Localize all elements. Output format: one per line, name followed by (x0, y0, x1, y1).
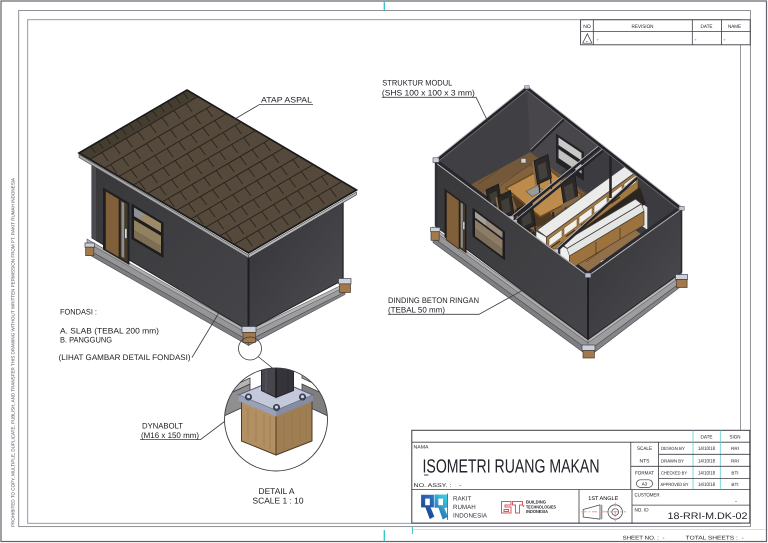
svg-text:ISOMETRI RUANG MAKAN: ISOMETRI RUANG MAKAN (423, 457, 600, 478)
svg-text:DATE: DATE (701, 24, 714, 30)
svg-text:(LIHAT GAMBAR DETAIL FONDASI): (LIHAT GAMBAR DETAIL FONDASI) (59, 353, 191, 362)
svg-text:NO. ASSY. : -: NO. ASSY. : - (414, 483, 462, 489)
svg-text:SCALE 1 : 10: SCALE 1 : 10 (253, 496, 304, 506)
svg-text:-: - (586, 39, 588, 45)
svg-text:-: - (597, 38, 599, 44)
svg-text:RRI: RRI (731, 446, 739, 451)
svg-text:NO. ID: NO. ID (635, 508, 649, 514)
svg-text:NTS: NTS (640, 459, 651, 465)
svg-text:BTI: BTI (731, 482, 738, 487)
svg-text:A. SLAB (TEBAL 200 mm): A. SLAB (TEBAL 200 mm) (60, 327, 159, 336)
svg-text:14/10/18: 14/10/18 (698, 482, 715, 488)
svg-text:(TEBAL 50 mm): (TEBAL 50 mm) (388, 305, 445, 314)
svg-text:(M16 x 150 mm): (M16 x 150 mm) (141, 431, 199, 440)
svg-text:NAME: NAME (728, 24, 742, 30)
svg-text:14/10/18: 14/10/18 (698, 446, 715, 452)
svg-text:INDONESIA: INDONESIA (526, 509, 549, 514)
svg-text:REVISION: REVISION (632, 24, 654, 30)
svg-text:DINDING BETON RINGAN: DINDING BETON RINGAN (388, 296, 479, 305)
svg-text:DATE: DATE (701, 435, 714, 441)
svg-text:FORMAT: FORMAT (635, 471, 654, 477)
svg-text:TOTAL SHEETS : -: TOTAL SHEETS : - (686, 536, 744, 542)
svg-text:BTI: BTI (731, 471, 738, 476)
svg-text:SIGN: SIGN (730, 435, 741, 441)
svg-text:SCALE: SCALE (637, 446, 653, 452)
svg-text:1ST ANGLE: 1ST ANGLE (588, 496, 618, 502)
svg-text:-: - (735, 499, 737, 505)
svg-text:(SHS 100 x 100 x 3 mm): (SHS 100 x 100 x 3 mm) (382, 88, 475, 97)
svg-text:SHEET NO. : -: SHEET NO. : - (623, 536, 665, 542)
svg-text:RAKIT: RAKIT (453, 496, 471, 503)
svg-text:14/10/18: 14/10/18 (698, 471, 715, 477)
svg-text:DRAWN BY: DRAWN BY (661, 459, 684, 464)
svg-text:NO: NO (583, 24, 591, 30)
svg-text:-: - (695, 38, 697, 44)
svg-text:NAMA: NAMA (414, 445, 430, 451)
svg-text:DYNABOLT: DYNABOLT (142, 422, 183, 431)
svg-text:DESIGN BY: DESIGN BY (661, 446, 685, 451)
svg-text:B. PANGGUNG: B. PANGGUNG (60, 336, 112, 345)
svg-text:CHECKED BY: CHECKED BY (661, 471, 687, 476)
svg-text:PROHIBITED TO COPY, MULTIPLE,: PROHIBITED TO COPY, MULTIPLE, DUPLICATE,… (11, 177, 16, 527)
svg-text:DETAIL A: DETAIL A (259, 486, 295, 496)
svg-text:RUMAH: RUMAH (453, 504, 476, 511)
svg-text:14/10/18: 14/10/18 (698, 459, 715, 465)
svg-text:APPROVED BY: APPROVED BY (661, 482, 689, 487)
svg-text:FONDASI :: FONDASI : (60, 308, 97, 317)
svg-text:RRI: RRI (731, 459, 739, 464)
svg-text:INDONESIA: INDONESIA (453, 513, 488, 520)
svg-text:18-RRI-M.DK-02: 18-RRI-M.DK-02 (668, 511, 748, 522)
svg-text:A3: A3 (642, 481, 648, 486)
svg-text:ATAP ASPAL: ATAP ASPAL (261, 96, 313, 105)
svg-text:-: - (724, 38, 726, 44)
svg-text:CUSTOMER: CUSTOMER (635, 492, 660, 498)
svg-text:STRUKTUR MODUL: STRUKTUR MODUL (382, 79, 453, 88)
